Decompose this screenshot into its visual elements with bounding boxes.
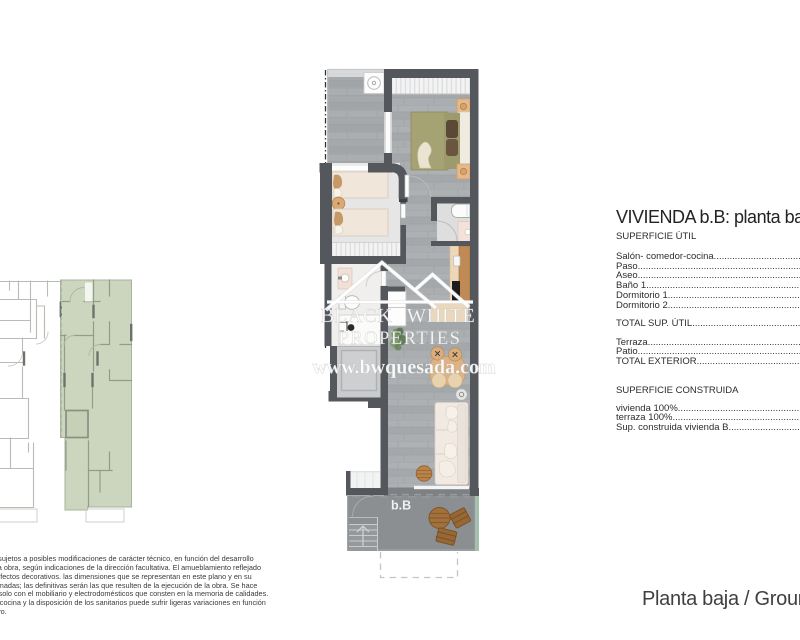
svg-text:www.bwquesada.com: www.bwquesada.com [312, 357, 496, 379]
svg-text:b.B: b.B [391, 499, 411, 513]
svg-text:BLACK: BLACK [321, 305, 393, 327]
svg-text:PROPERTIES: PROPERTIES [339, 329, 462, 349]
svg-text:WHITE: WHITE [407, 305, 476, 327]
